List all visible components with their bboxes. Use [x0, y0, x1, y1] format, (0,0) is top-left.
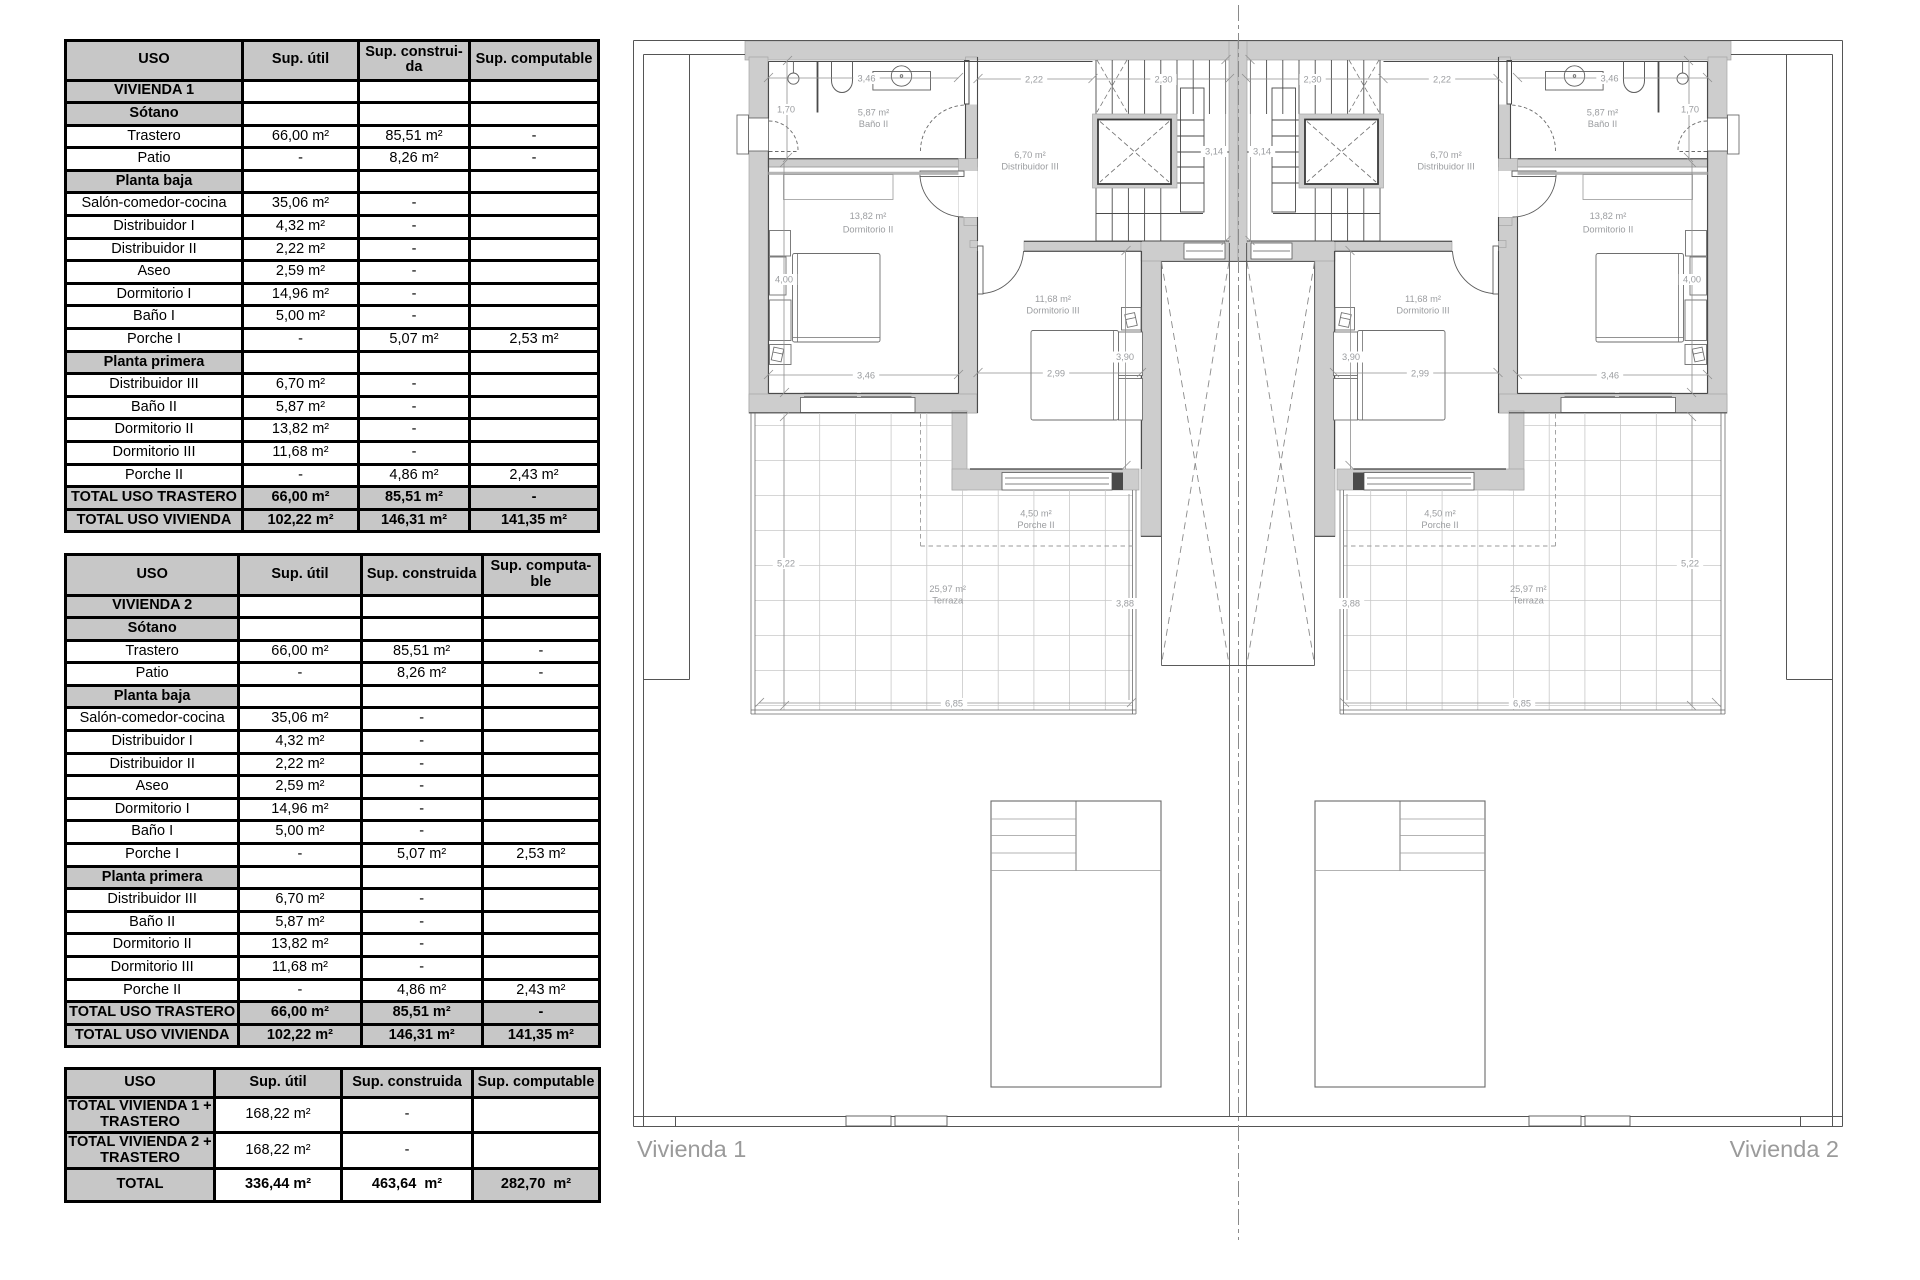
svg-text:5,87 m²: 5,87 m² [1587, 108, 1619, 118]
svg-text:4,50 m²: 4,50 m² [1424, 509, 1456, 519]
svg-text:5,87 m²: 5,87 m² [858, 108, 890, 118]
svg-text:3,90: 3,90 [1342, 352, 1360, 362]
svg-text:3,88: 3,88 [1116, 599, 1134, 609]
svg-text:3,90: 3,90 [1116, 352, 1134, 362]
svg-text:3,46: 3,46 [857, 371, 875, 381]
svg-text:6,85: 6,85 [945, 699, 963, 709]
svg-text:Vivienda 2: Vivienda 2 [1730, 1136, 1839, 1162]
svg-text:2,30: 2,30 [1154, 75, 1172, 85]
svg-text:5,22: 5,22 [1681, 559, 1699, 569]
svg-text:3,14: 3,14 [1205, 147, 1223, 157]
svg-text:Baño II: Baño II [1588, 119, 1617, 129]
svg-text:Dormitorio II: Dormitorio II [1583, 225, 1634, 235]
svg-text:1,70: 1,70 [1681, 105, 1699, 115]
svg-text:Terraza: Terraza [1513, 596, 1545, 606]
svg-text:25,97 m²: 25,97 m² [929, 584, 966, 594]
svg-text:2,22: 2,22 [1025, 75, 1043, 85]
svg-text:Dormitorio III: Dormitorio III [1396, 306, 1449, 316]
svg-text:13,82 m²: 13,82 m² [850, 211, 887, 221]
svg-text:11,68 m²: 11,68 m² [1405, 294, 1441, 304]
svg-text:5,22: 5,22 [777, 559, 795, 569]
svg-text:3,46: 3,46 [1601, 371, 1619, 381]
svg-text:11,68 m²: 11,68 m² [1035, 294, 1071, 304]
svg-text:4,50 m²: 4,50 m² [1020, 509, 1052, 519]
svg-text:6,70 m²: 6,70 m² [1014, 150, 1046, 160]
svg-text:4,00: 4,00 [775, 275, 793, 285]
svg-text:25,97 m²: 25,97 m² [1510, 584, 1547, 594]
svg-text:Vivienda 1: Vivienda 1 [637, 1136, 746, 1162]
svg-text:3,88: 3,88 [1342, 599, 1360, 609]
svg-text:2,99: 2,99 [1047, 369, 1065, 379]
svg-text:13,82 m²: 13,82 m² [1590, 211, 1627, 221]
svg-text:6,70 m²: 6,70 m² [1430, 150, 1462, 160]
svg-text:2,22: 2,22 [1433, 75, 1451, 85]
svg-text:Distribuidor III: Distribuidor III [1417, 162, 1474, 172]
svg-text:1,70: 1,70 [777, 105, 795, 115]
svg-text:3,46: 3,46 [857, 74, 875, 84]
svg-text:Porche II: Porche II [1017, 520, 1054, 530]
svg-text:6,85: 6,85 [1513, 699, 1531, 709]
svg-text:Dormitorio III: Dormitorio III [1026, 306, 1079, 316]
svg-text:2,30: 2,30 [1303, 75, 1321, 85]
svg-text:4,00: 4,00 [1683, 275, 1701, 285]
svg-text:3,46: 3,46 [1600, 74, 1618, 84]
svg-text:Dormitorio II: Dormitorio II [843, 225, 894, 235]
svg-text:Baño II: Baño II [859, 119, 888, 129]
svg-text:2,99: 2,99 [1411, 369, 1429, 379]
svg-text:Distribuidor III: Distribuidor III [1001, 162, 1058, 172]
svg-text:Porche II: Porche II [1421, 520, 1458, 530]
svg-text:Terraza: Terraza [932, 596, 964, 606]
svg-text:3,14: 3,14 [1253, 147, 1271, 157]
